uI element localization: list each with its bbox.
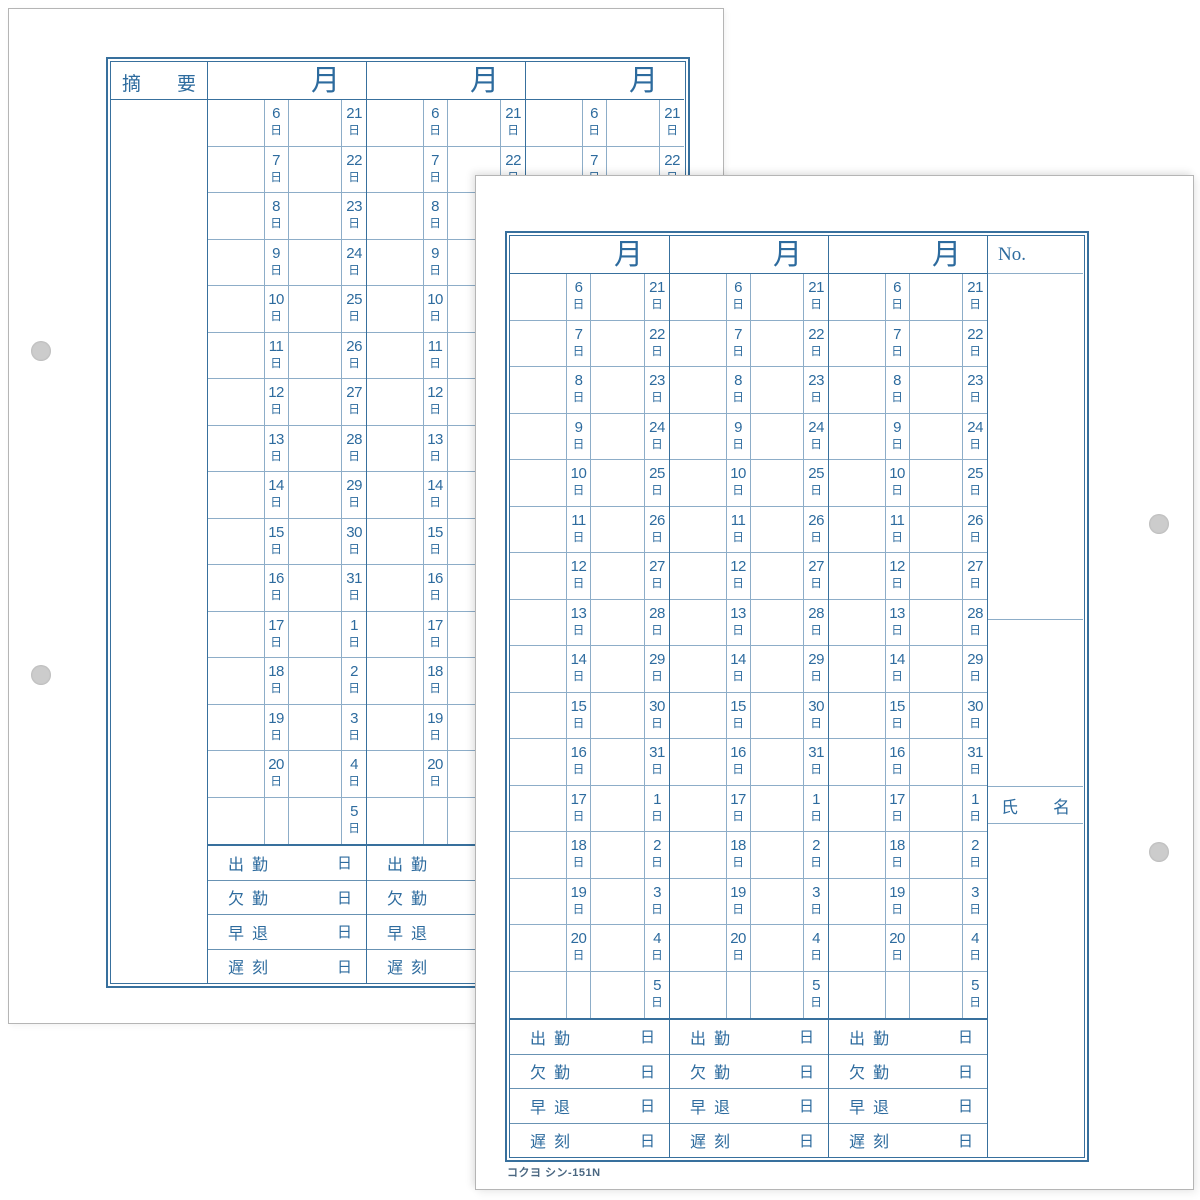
day-unit: 日 (732, 811, 744, 824)
day-row: 15日30日 (510, 693, 669, 740)
month-header: 月 (208, 62, 366, 100)
entry-cell (289, 705, 343, 751)
day-number: 20 (730, 930, 746, 947)
day-number: 19 (427, 710, 443, 727)
day-number: 15 (730, 698, 746, 715)
entry-cell (910, 972, 964, 1019)
summary-label: 遅 刻 (387, 954, 429, 978)
day-cell-right: 1日 (804, 786, 828, 832)
entry-cell (367, 612, 424, 658)
day-row: 20日4日 (670, 925, 828, 972)
summary-unit: 日 (799, 1095, 814, 1116)
day-number: 7 (734, 326, 742, 343)
summary-row: 欠 勤日 (829, 1055, 987, 1090)
day-unit: 日 (732, 950, 744, 963)
day-cell-right: 4日 (342, 751, 366, 797)
day-row: 19日3日 (510, 879, 669, 926)
summary-row: 早 退日 (510, 1089, 669, 1124)
day-cell-right: 30日 (804, 693, 828, 739)
day-number: 16 (730, 744, 746, 761)
entry-cell (510, 367, 567, 413)
day-number: 26 (808, 512, 824, 529)
day-cell-left: 6日 (567, 274, 591, 320)
day-cell-right: 25日 (342, 286, 366, 332)
day-number: 7 (575, 326, 583, 343)
day-unit: 日 (348, 311, 360, 324)
day-cell-right: 3日 (963, 879, 987, 925)
day-row: 7日22日 (670, 321, 828, 368)
entry-cell (670, 693, 727, 739)
day-unit: 日 (810, 485, 822, 498)
entry-cell (367, 472, 424, 518)
entry-cell (289, 333, 343, 379)
remarks-header: 摘 要 (111, 62, 207, 100)
day-row: 20日4日 (208, 751, 366, 798)
day-cell-left: 20日 (265, 751, 289, 797)
day-number: 25 (808, 465, 824, 482)
day-unit: 日 (573, 904, 585, 917)
day-cell-left: 15日 (567, 693, 591, 739)
day-row: 14日29日 (208, 472, 366, 519)
day-unit: 日 (969, 485, 981, 498)
entry-cell (829, 646, 886, 692)
day-unit: 日 (651, 764, 663, 777)
day-number: 11 (428, 338, 443, 355)
day-cell-left: 19日 (265, 705, 289, 751)
entry-cell (289, 147, 343, 193)
day-unit: 日 (891, 299, 903, 312)
summary-unit: 日 (337, 887, 352, 908)
day-number: 21 (649, 279, 665, 296)
summary-label: 遅 刻 (849, 1128, 891, 1152)
day-cell-right: 26日 (645, 507, 669, 553)
summary-label: 遅 刻 (530, 1128, 572, 1152)
entry-cell (591, 646, 645, 692)
day-unit: 日 (810, 857, 822, 870)
entry-cell (510, 553, 567, 599)
entry-cell (751, 739, 805, 785)
day-row: 9日24日 (208, 240, 366, 287)
day-cell-left: 18日 (727, 832, 751, 878)
day-cell-right: 31日 (342, 565, 366, 611)
day-unit: 日 (429, 590, 441, 603)
day-unit: 日 (270, 497, 282, 510)
day-number: 7 (431, 152, 439, 169)
day-unit: 日 (429, 172, 441, 185)
day-unit: 日 (429, 311, 441, 324)
day-unit: 日 (270, 218, 282, 231)
day-row: 12日27日 (510, 553, 669, 600)
day-cell-right: 31日 (804, 739, 828, 785)
entry-cell (751, 321, 805, 367)
month-column: 月6日21日7日22日8日23日9日24日10日25日11日26日12日27日1… (669, 236, 828, 1157)
day-unit: 日 (810, 904, 822, 917)
day-cell-right: 29日 (342, 472, 366, 518)
day-cell-left: 13日 (886, 600, 910, 646)
day-unit: 日 (651, 950, 663, 963)
day-unit: 日 (573, 578, 585, 591)
day-unit: 日 (651, 485, 663, 498)
day-unit: 日 (651, 718, 663, 731)
day-number: 5 (653, 977, 661, 994)
month-header: 月 (526, 62, 684, 100)
day-cell-left: 20日 (567, 925, 591, 971)
day-unit: 日 (651, 439, 663, 452)
summary-unit: 日 (958, 1026, 973, 1047)
summary-unit: 日 (640, 1095, 655, 1116)
day-row: 17日1日 (670, 786, 828, 833)
day-unit: 日 (651, 857, 663, 870)
day-cell-right: 27日 (963, 553, 987, 599)
entry-cell (670, 274, 727, 320)
entry-cell (208, 705, 265, 751)
entry-cell (289, 612, 343, 658)
entry-cell (591, 786, 645, 832)
day-cell-left: 18日 (567, 832, 591, 878)
day-number: 19 (730, 884, 746, 901)
entry-cell (367, 100, 424, 146)
entry-cell (591, 321, 645, 367)
summary-label: 早 退 (228, 920, 270, 944)
day-cell-right: 2日 (963, 832, 987, 878)
day-number: 2 (971, 837, 979, 854)
day-number: 1 (971, 791, 979, 808)
day-unit: 日 (810, 578, 822, 591)
day-row: 8日23日 (510, 367, 669, 414)
day-number: 25 (346, 291, 362, 308)
day-rows: 6日21日7日22日8日23日9日24日10日25日11日26日12日27日13… (208, 100, 366, 846)
day-unit: 日 (573, 811, 585, 824)
day-cell-left: 16日 (727, 739, 751, 785)
day-unit: 日 (732, 578, 744, 591)
summary-unit: 日 (337, 921, 352, 942)
entry-cell (289, 193, 343, 239)
day-row: 6日21日 (208, 100, 366, 147)
day-number: 23 (346, 198, 362, 215)
entry-cell (829, 972, 886, 1019)
day-cell-left: 12日 (265, 379, 289, 425)
month-column: 月6日21日7日22日8日23日9日24日10日25日11日26日12日27日1… (207, 62, 366, 983)
day-cell-right: 23日 (342, 193, 366, 239)
day-cell-right: 1日 (645, 786, 669, 832)
day-number: 29 (808, 651, 824, 668)
name-label-cell: 氏 名 (988, 787, 1083, 824)
month-header: 月 (829, 236, 987, 274)
day-row: 18日2日 (670, 832, 828, 879)
day-row: 14日29日 (829, 646, 987, 693)
day-unit: 日 (507, 125, 519, 138)
day-cell-right: 3日 (804, 879, 828, 925)
day-unit: 日 (348, 172, 360, 185)
day-cell-left: 6日 (727, 274, 751, 320)
day-cell-left: 9日 (567, 414, 591, 460)
day-number: 10 (268, 291, 284, 308)
day-cell-left: 16日 (886, 739, 910, 785)
entry-cell (208, 193, 265, 239)
day-rows: 6日21日7日22日8日23日9日24日10日25日11日26日12日27日13… (510, 274, 669, 1020)
day-unit: 日 (429, 358, 441, 371)
summary-unit: 日 (337, 852, 352, 873)
day-unit: 日 (891, 392, 903, 405)
summary-row: 欠 勤日 (670, 1055, 828, 1090)
entry-cell (510, 274, 567, 320)
summary-label: 早 退 (530, 1094, 572, 1118)
entry-cell (751, 460, 805, 506)
day-unit: 日 (810, 625, 822, 638)
entry-cell (910, 646, 964, 692)
summary-label: 出 勤 (387, 851, 429, 875)
day-cell-left: 15日 (727, 693, 751, 739)
day-cell-right: 5日 (645, 972, 669, 1019)
day-number: 10 (571, 465, 587, 482)
day-unit: 日 (573, 764, 585, 777)
day-cell-right: 26日 (963, 507, 987, 553)
day-row: 9日24日 (670, 414, 828, 461)
entry-cell (367, 426, 424, 472)
remarks-body (111, 100, 207, 983)
day-number: 30 (649, 698, 665, 715)
summary-label: 欠 勤 (690, 1059, 732, 1083)
day-number: 28 (808, 605, 824, 622)
day-number: 11 (269, 338, 284, 355)
day-unit: 日 (666, 125, 678, 138)
day-row: 17日1日 (829, 786, 987, 833)
entry-cell (367, 565, 424, 611)
day-cell-left (567, 972, 591, 1019)
day-number: 18 (889, 837, 905, 854)
day-number: 31 (808, 744, 824, 761)
entry-cell (751, 600, 805, 646)
day-number: 24 (346, 245, 362, 262)
entry-cell (208, 100, 265, 146)
day-number: 21 (808, 279, 824, 296)
summary-label: 早 退 (849, 1094, 891, 1118)
entry-cell (591, 739, 645, 785)
day-cell-right: 31日 (645, 739, 669, 785)
no-header: No. (988, 236, 1083, 274)
summary-row: 早 退日 (670, 1089, 828, 1124)
day-number: 24 (808, 419, 824, 436)
month-label: 月 (614, 238, 643, 272)
day-number: 12 (730, 558, 746, 575)
entry-cell (367, 798, 424, 845)
entry-cell (670, 879, 727, 925)
day-number: 5 (971, 977, 979, 994)
day-unit: 日 (810, 439, 822, 452)
day-number: 31 (346, 570, 362, 587)
entry-cell (910, 414, 964, 460)
entry-cell (829, 553, 886, 599)
entry-cell (829, 879, 886, 925)
entry-cell (208, 333, 265, 379)
day-unit: 日 (429, 497, 441, 510)
day-number: 8 (893, 372, 901, 389)
day-unit: 日 (348, 776, 360, 789)
day-cell-left: 8日 (265, 193, 289, 239)
day-number: 4 (971, 930, 979, 947)
summary-row: 出 勤日 (510, 1020, 669, 1055)
day-unit: 日 (810, 811, 822, 824)
day-number: 22 (967, 326, 983, 343)
day-cell-left: 6日 (424, 100, 448, 146)
day-cell-left: 19日 (567, 879, 591, 925)
summary-label: 早 退 (387, 920, 429, 944)
day-cell-right: 23日 (963, 367, 987, 413)
day-row: 13日28日 (510, 600, 669, 647)
day-number: 12 (889, 558, 905, 575)
day-cell-right: 22日 (804, 321, 828, 367)
entry-cell (367, 286, 424, 332)
entry-cell (289, 658, 343, 704)
attendance-table-front-grid: 月6日21日7日22日8日23日9日24日10日25日11日26日12日27日1… (509, 235, 1085, 1158)
day-unit: 日 (348, 590, 360, 603)
day-row: 20日4日 (829, 925, 987, 972)
day-cell-left: 9日 (265, 240, 289, 286)
summary-label: 遅 刻 (690, 1128, 732, 1152)
day-cell-left: 11日 (727, 507, 751, 553)
day-number: 9 (431, 245, 439, 262)
day-cell-left: 15日 (886, 693, 910, 739)
entry-cell (367, 658, 424, 704)
day-row: 8日23日 (208, 193, 366, 240)
entry-cell (208, 519, 265, 565)
day-cell-left: 14日 (424, 472, 448, 518)
day-number: 12 (571, 558, 587, 575)
summary-unit: 日 (958, 1061, 973, 1082)
entry-cell (591, 693, 645, 739)
day-unit: 日 (891, 857, 903, 870)
day-number: 10 (427, 291, 443, 308)
day-number: 20 (268, 756, 284, 773)
day-unit: 日 (651, 532, 663, 545)
day-cell-left: 6日 (886, 274, 910, 320)
day-unit: 日 (969, 718, 981, 731)
day-number: 16 (427, 570, 443, 587)
day-unit: 日 (891, 578, 903, 591)
day-row: 13日28日 (208, 426, 366, 473)
day-number: 29 (967, 651, 983, 668)
day-cell-left: 7日 (265, 147, 289, 193)
entry-cell (208, 240, 265, 286)
day-row: 6日21日 (670, 274, 828, 321)
summary-row: 欠 勤日 (208, 881, 366, 916)
day-number: 13 (571, 605, 587, 622)
front-sheet: 月6日21日7日22日8日23日9日24日10日25日11日26日12日27日1… (475, 175, 1194, 1190)
day-cell-left: 7日 (567, 321, 591, 367)
day-row: 20日4日 (510, 925, 669, 972)
entry-cell (591, 274, 645, 320)
day-number: 23 (649, 372, 665, 389)
day-cell-left: 16日 (567, 739, 591, 785)
entry-cell (289, 565, 343, 611)
day-cell-right: 5日 (963, 972, 987, 1019)
day-number: 19 (889, 884, 905, 901)
day-row: 6日21日 (510, 274, 669, 321)
day-cell-left: 6日 (583, 100, 607, 146)
summary-row: 早 退日 (829, 1089, 987, 1124)
day-number: 7 (893, 326, 901, 343)
day-cell-right: 22日 (963, 321, 987, 367)
day-row: 10日25日 (670, 460, 828, 507)
entry-cell (829, 739, 886, 785)
day-number: 2 (812, 837, 820, 854)
attendance-form-product-photo: 摘 要月6日21日7日22日8日23日9日24日10日25日11日26日12日2… (0, 0, 1200, 1200)
summary-row: 遅 刻日 (670, 1124, 828, 1158)
entry-cell (510, 879, 567, 925)
day-cell-left: 18日 (424, 658, 448, 704)
day-unit: 日 (651, 392, 663, 405)
entry-cell (910, 832, 964, 878)
day-unit: 日 (969, 857, 981, 870)
day-number: 23 (967, 372, 983, 389)
summary-unit: 日 (958, 1130, 973, 1151)
summary-unit: 日 (640, 1061, 655, 1082)
day-unit: 日 (429, 451, 441, 464)
entry-cell (289, 751, 343, 797)
day-cell-left: 12日 (886, 553, 910, 599)
day-cell-left: 10日 (567, 460, 591, 506)
entry-cell (670, 321, 727, 367)
month-label: 月 (773, 238, 802, 272)
day-unit: 日 (969, 299, 981, 312)
day-cell-left (886, 972, 910, 1019)
day-unit: 日 (651, 811, 663, 824)
entry-cell (829, 414, 886, 460)
entry-cell (591, 832, 645, 878)
day-row: 15日30日 (829, 693, 987, 740)
day-unit: 日 (810, 299, 822, 312)
day-unit: 日 (429, 218, 441, 231)
day-cell-right: 1日 (963, 786, 987, 832)
entry-cell (910, 553, 964, 599)
day-unit: 日 (969, 578, 981, 591)
entry-cell (910, 460, 964, 506)
day-cell-right: 3日 (342, 705, 366, 751)
day-cell-left (727, 972, 751, 1019)
day-row: 13日28日 (829, 600, 987, 647)
entry-cell (751, 879, 805, 925)
day-number: 27 (346, 384, 362, 401)
day-cell-right: 31日 (963, 739, 987, 785)
entry-cell (591, 507, 645, 553)
day-unit: 日 (573, 857, 585, 870)
day-number: 24 (967, 419, 983, 436)
day-cell-right: 27日 (645, 553, 669, 599)
day-unit: 日 (732, 904, 744, 917)
entry-cell (670, 972, 727, 1019)
entry-cell (910, 600, 964, 646)
day-number: 3 (350, 710, 358, 727)
day-row: 11日26日 (670, 507, 828, 554)
day-unit: 日 (270, 404, 282, 417)
entry-cell (910, 274, 964, 320)
day-unit: 日 (348, 544, 360, 557)
day-unit: 日 (270, 590, 282, 603)
day-number: 26 (967, 512, 983, 529)
day-row: 8日23日 (829, 367, 987, 414)
entry-cell (591, 414, 645, 460)
day-number: 9 (272, 245, 280, 262)
day-unit: 日 (348, 358, 360, 371)
day-cell-left: 20日 (424, 751, 448, 797)
day-unit: 日 (969, 346, 981, 359)
day-unit: 日 (270, 451, 282, 464)
day-cell-right: 21日 (342, 100, 366, 146)
day-cell-left: 17日 (727, 786, 751, 832)
day-number: 2 (350, 663, 358, 680)
summary-label: 出 勤 (530, 1025, 572, 1049)
day-row: 8日23日 (670, 367, 828, 414)
